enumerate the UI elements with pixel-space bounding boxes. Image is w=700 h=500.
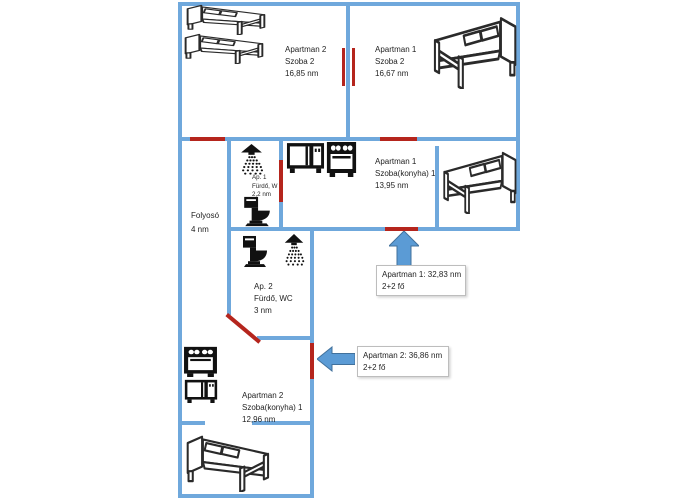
- wall-outer-bottom: [178, 494, 314, 498]
- bed-icon: [429, 15, 517, 89]
- room-label-apartman1-szoba2: Apartman 1 Szoba 2 16,67 nm: [375, 44, 416, 80]
- room-label-apartman2-szoba2: Apartman 2 Szoba 2 16,85 nm: [285, 44, 326, 80]
- arrow-up-icon: [389, 231, 419, 267]
- bed-icon: [184, 33, 268, 64]
- door-marker-corridor: [190, 137, 225, 141]
- toilet-icon: [241, 196, 273, 227]
- door-marker-ap1-szoba2: [380, 137, 417, 141]
- bed-icon: [186, 434, 274, 492]
- door-marker-ap2-entrance: [310, 343, 314, 379]
- room-label-apartman1-szoba-konyha: Apartman 1 Szoba(konyha) 1 13,95 nm: [375, 156, 435, 192]
- bed-icon: [439, 150, 517, 214]
- door-marker-bath1: [279, 160, 283, 202]
- door-marker-top-rooms-left: [342, 48, 345, 86]
- microwave-icon: [184, 379, 218, 403]
- room-label-furdo1: Ap. 1 Fürdő, W 2,2 nm: [252, 174, 277, 200]
- room-label-furdo2: Ap. 2 Fürdő, WC 3 nm: [254, 281, 293, 317]
- arrow-left-icon: [317, 346, 355, 372]
- door-swing-bath2: [226, 313, 261, 343]
- wall-bath2-bottom: [257, 336, 314, 340]
- bed-icon: [186, 4, 270, 35]
- microwave-icon: [286, 142, 325, 173]
- stove-icon: [326, 141, 357, 177]
- floor-plan: Apartman 2 Szoba 2 16,85 nm Apartman 1 S…: [0, 0, 700, 500]
- room-label-folyoso: Folyosó 4 nm: [191, 209, 219, 237]
- wall-ap2-top-left: [178, 421, 205, 425]
- door-marker-top-rooms-right: [352, 48, 355, 86]
- callout-apartman2: Apartman 2: 36,86 nm 2+2 fő: [357, 346, 449, 377]
- shower-icon: [238, 144, 265, 176]
- wall-bath1-left: [227, 137, 231, 315]
- wall-top-divider: [346, 2, 350, 141]
- shower-icon: [282, 234, 306, 267]
- room-label-apartman2-szoba-konyha: Apartman 2 Szoba(konyha) 1 12,96 nm: [242, 390, 302, 426]
- wall-mid-lower: [227, 227, 520, 231]
- callout-apartman1: Apartman 1: 32,83 nm 2+2 fő: [376, 265, 466, 296]
- toilet-icon: [240, 235, 270, 268]
- stove-icon: [183, 346, 218, 377]
